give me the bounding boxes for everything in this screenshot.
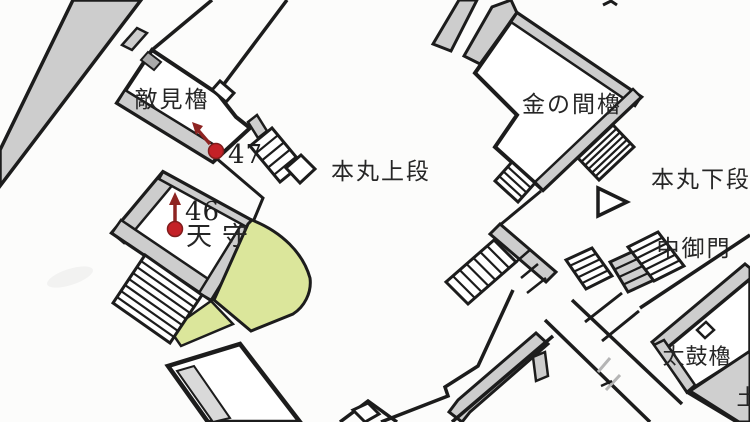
marker-dot <box>168 222 183 237</box>
naka-gomon-label: 中御門 <box>657 236 732 262</box>
castle-map: 敵見櫓 天守 本丸上段 金の間櫓 <box>0 0 750 422</box>
wall-post <box>533 352 548 381</box>
kin-no-ma-label: 金の間櫓 <box>522 92 622 118</box>
honmaru-jodan-label: 本丸上段 <box>331 159 431 185</box>
edge-partial-label: 土 <box>736 386 750 411</box>
marker-47-number: 47 <box>228 140 263 170</box>
taiko-yagura-label: 太鼓櫓 <box>662 345 731 370</box>
marker-46-number: 46 <box>185 197 220 227</box>
honmaru-gedan-label: 本丸下段 <box>651 167 750 193</box>
marker-dot <box>209 144 224 159</box>
map-paper <box>0 0 750 422</box>
tekimi-yagura-label: 敵見櫓 <box>135 87 210 113</box>
